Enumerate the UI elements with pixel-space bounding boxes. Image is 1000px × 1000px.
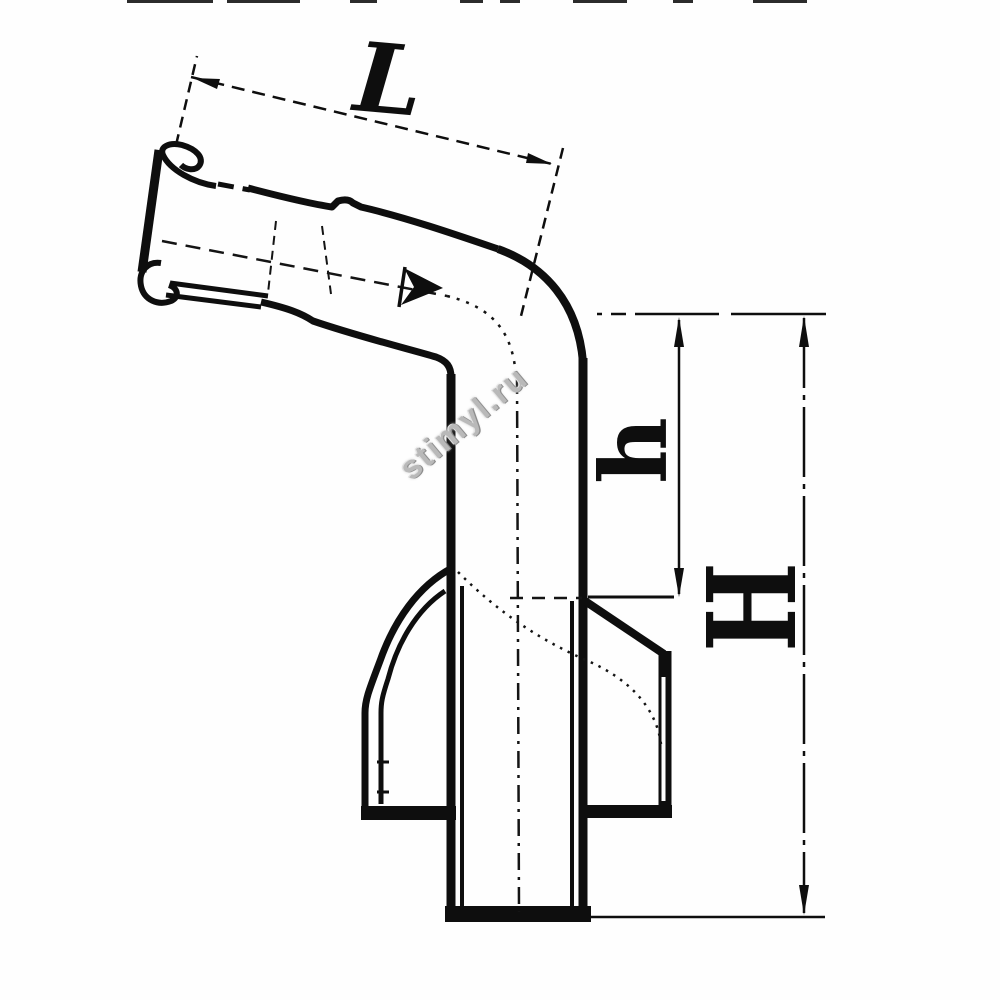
flange-lip-edge-lower: [166, 295, 261, 307]
edge-dash: [127, 0, 213, 3]
union-flare-diagonal: [585, 601, 664, 654]
edge-dash: [227, 0, 300, 3]
edge-dash: [460, 0, 483, 3]
solid-fills: [361, 805, 672, 922]
inlet-bottom-edge: [261, 302, 451, 377]
technical-drawing-canvas: L h H: [0, 0, 1000, 1000]
inlet-top-edge-dash: [218, 184, 250, 190]
dimension-label-L: L: [347, 20, 427, 139]
union-dome-inner-wall: [381, 591, 445, 804]
dimension-label-h: h: [580, 417, 688, 484]
flange-lip-edge-upper: [170, 283, 268, 296]
union-dome-outer-wall: [365, 568, 452, 810]
dim-H-arrow-bottom: [799, 885, 809, 915]
union-dome-bottom: [361, 806, 456, 820]
union-flare-bottom: [581, 805, 672, 818]
dim-L-arrow-right: [526, 153, 552, 164]
flange-face: [142, 150, 159, 272]
drawing-page: L h H stimyl.ru: [0, 0, 1000, 1000]
dim-h-arrow-top: [674, 317, 684, 347]
edge-dash: [350, 0, 377, 3]
dim-L-extension-left: [176, 56, 197, 145]
pipe-body-outline: [140, 144, 825, 918]
edge-dash: [753, 0, 807, 3]
dim-H-arrow-top: [799, 316, 809, 347]
center-mark-1: [268, 221, 276, 293]
flange-top-lip: [162, 144, 216, 186]
center-mark-2: [322, 226, 331, 294]
top-edge-artifacts: [127, 0, 807, 3]
dimension-label-H: H: [680, 562, 824, 652]
flow-arrow-head: [401, 268, 443, 305]
elbow-outer-curve: [498, 249, 583, 362]
edge-dash: [673, 0, 693, 3]
vertical-axis-centerline: [517, 377, 519, 912]
inlet-top-edge: [248, 188, 498, 249]
dim-L-arrow-left: [193, 78, 220, 89]
edge-dash: [573, 0, 627, 3]
outlet-pipe-bottom: [445, 906, 591, 922]
edge-dash: [500, 0, 520, 3]
